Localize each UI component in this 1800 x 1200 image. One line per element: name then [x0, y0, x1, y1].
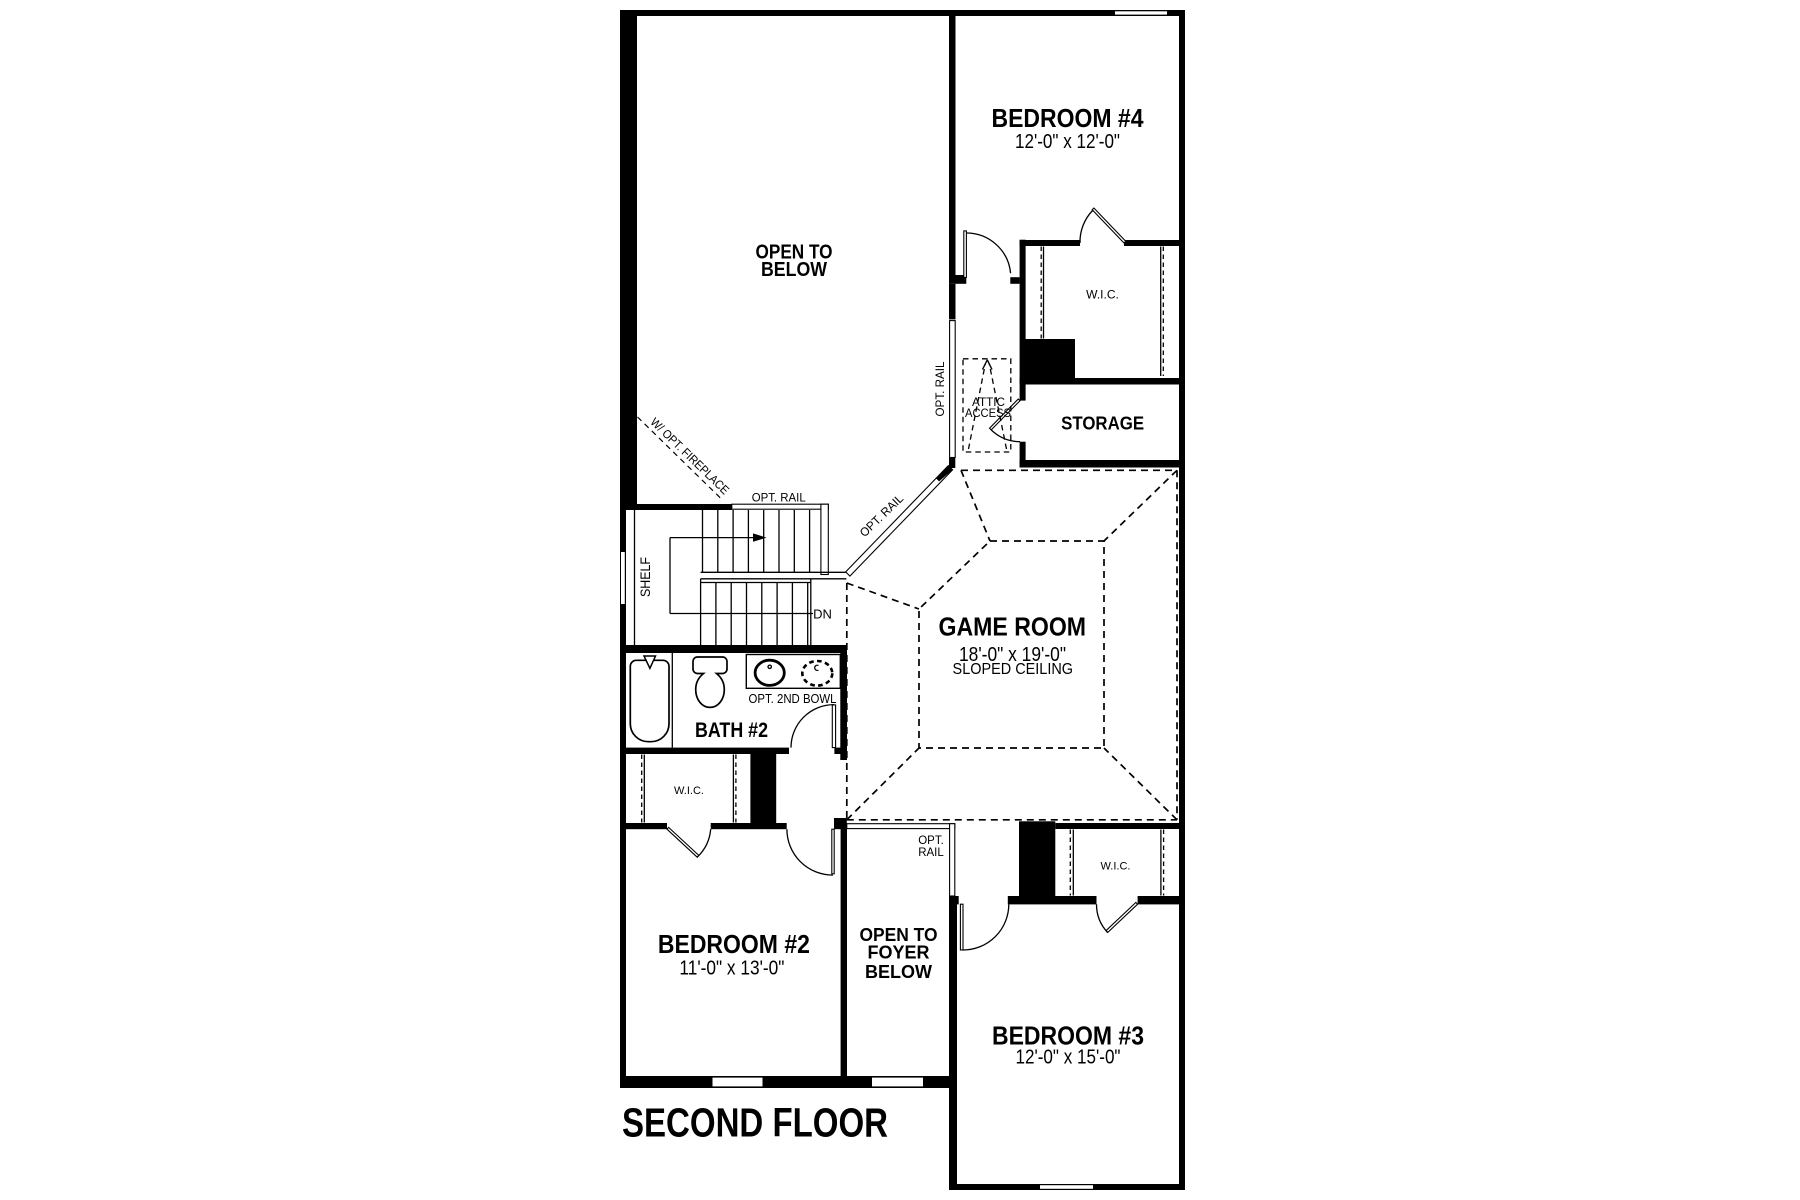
- svg-text:BEDROOM #2: BEDROOM #2: [658, 929, 810, 959]
- svg-text:ACCESS: ACCESS: [965, 408, 1011, 420]
- svg-text:11'-0" x 13'-0": 11'-0" x 13'-0": [679, 957, 784, 979]
- svg-text:BATH #2: BATH #2: [695, 719, 768, 742]
- svg-text:SHELF: SHELF: [637, 557, 653, 597]
- svg-text:W.I.C.: W.I.C.: [1101, 860, 1131, 872]
- svg-text:FOYER: FOYER: [867, 942, 929, 962]
- svg-text:BELOW: BELOW: [761, 259, 827, 281]
- svg-text:W.I.C.: W.I.C.: [674, 785, 704, 797]
- svg-text:OPT. RAIL: OPT. RAIL: [752, 490, 806, 504]
- svg-text:OPT. 2ND BOWL: OPT. 2ND BOWL: [749, 692, 837, 706]
- svg-text:BEDROOM #4: BEDROOM #4: [992, 103, 1144, 133]
- svg-text:SLOPED CEILING: SLOPED CEILING: [953, 661, 1074, 678]
- svg-text:GAME ROOM: GAME ROOM: [939, 612, 1087, 642]
- svg-text:DN: DN: [813, 607, 832, 622]
- svg-text:STORAGE: STORAGE: [1061, 413, 1144, 434]
- svg-text:OPT.: OPT.: [918, 835, 944, 847]
- svg-text:W.I.C.: W.I.C.: [1086, 287, 1119, 301]
- svg-text:BELOW: BELOW: [865, 962, 932, 982]
- svg-text:12'-0" x 15'-0": 12'-0" x 15'-0": [1016, 1046, 1121, 1068]
- svg-text:12'-0" x 12'-0": 12'-0" x 12'-0": [1015, 131, 1120, 153]
- svg-text:SECOND FLOOR: SECOND FLOOR: [622, 1100, 888, 1146]
- svg-text:RAIL: RAIL: [918, 847, 944, 859]
- svg-text:OPT. RAIL: OPT. RAIL: [933, 361, 947, 416]
